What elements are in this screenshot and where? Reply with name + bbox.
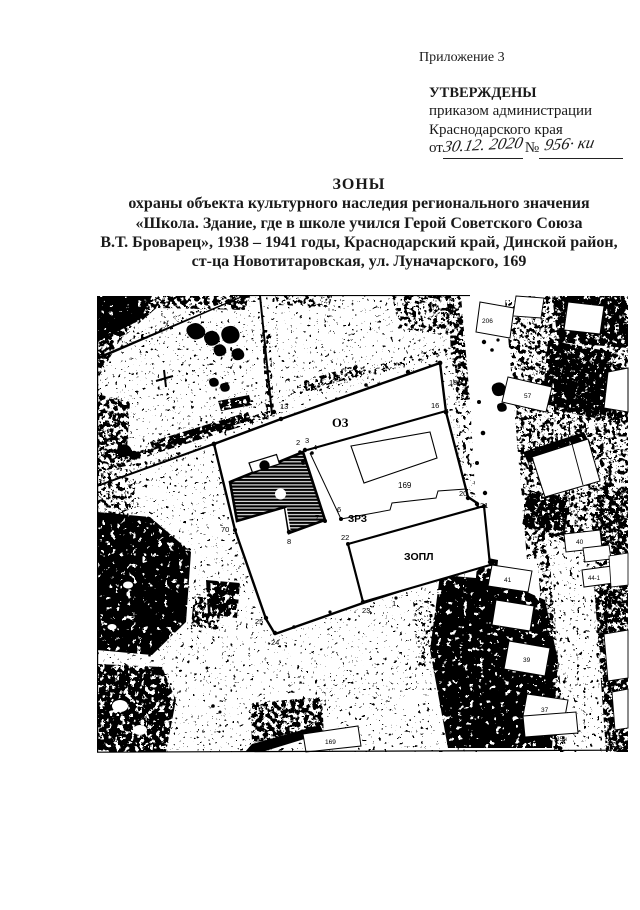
svg-text:20: 20 [459, 489, 467, 498]
svg-text:5: 5 [301, 458, 305, 467]
svg-text:206: 206 [482, 318, 493, 325]
svg-text:16: 16 [431, 401, 439, 410]
svg-text:39: 39 [523, 657, 531, 664]
svg-text:ОЗ: ОЗ [332, 416, 349, 430]
svg-text:37: 37 [541, 707, 549, 714]
svg-text:4: 4 [313, 443, 317, 452]
svg-text:21: 21 [480, 501, 488, 510]
svg-text:40: 40 [576, 539, 584, 546]
svg-text:44-1: 44-1 [588, 576, 601, 582]
svg-text:35н: 35н [556, 736, 567, 743]
svg-text:41: 41 [504, 577, 512, 584]
svg-text:3: 3 [305, 436, 309, 445]
svg-text:70: 70 [221, 525, 229, 534]
svg-text:1: 1 [392, 599, 396, 608]
svg-text:23: 23 [362, 606, 370, 615]
svg-text:18: 18 [449, 378, 457, 387]
svg-text:169: 169 [325, 739, 336, 746]
svg-text:2: 2 [296, 438, 300, 447]
svg-text:ЗОПЛ: ЗОПЛ [404, 551, 434, 563]
svg-text:13: 13 [280, 402, 288, 411]
svg-text:22: 22 [341, 533, 349, 542]
svg-text:44: 44 [600, 613, 608, 620]
svg-text:25: 25 [255, 617, 263, 626]
svg-text:169: 169 [398, 481, 412, 490]
svg-text:ЗРЗ: ЗРЗ [348, 514, 367, 525]
svg-text:7: 7 [315, 513, 319, 522]
svg-text:6: 6 [337, 505, 341, 514]
svg-text:8: 8 [287, 537, 291, 546]
svg-text:57: 57 [524, 393, 532, 400]
svg-text:24: 24 [271, 638, 279, 647]
